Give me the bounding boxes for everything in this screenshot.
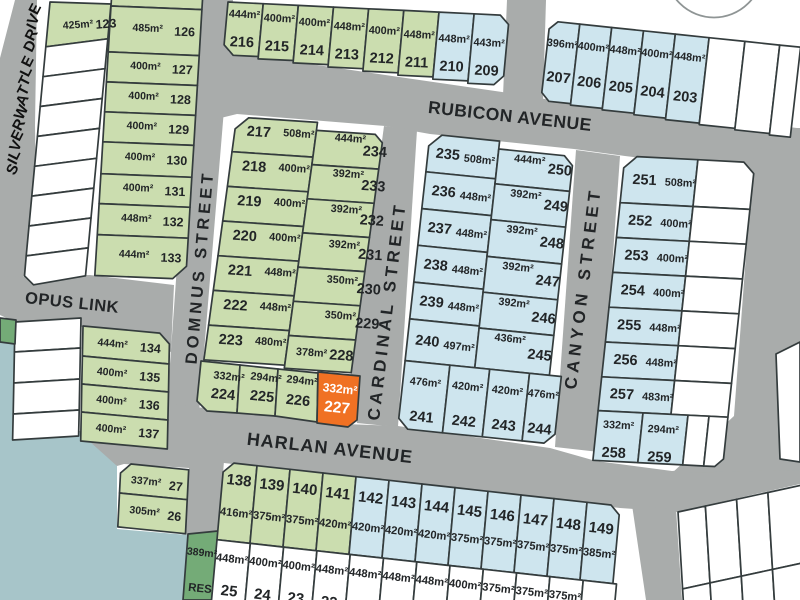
svg-text:400m²: 400m² (123, 182, 154, 195)
svg-text:256: 256 (613, 352, 638, 369)
svg-text:238: 238 (423, 257, 449, 275)
svg-text:332m²: 332m² (603, 419, 635, 433)
svg-text:350m²: 350m² (326, 274, 358, 288)
svg-text:132: 132 (162, 215, 183, 230)
svg-text:400m²: 400m² (274, 196, 306, 210)
svg-text:27: 27 (168, 479, 183, 494)
svg-text:400m²: 400m² (126, 120, 157, 133)
svg-text:207: 207 (546, 69, 572, 87)
svg-text:127: 127 (172, 62, 193, 77)
svg-text:134: 134 (139, 340, 161, 356)
svg-text:448m²: 448m² (403, 28, 435, 41)
svg-text:123: 123 (95, 16, 117, 31)
svg-text:215: 215 (264, 38, 289, 55)
svg-text:220: 220 (232, 228, 257, 246)
svg-text:400m²: 400m² (269, 231, 301, 245)
svg-text:240: 240 (414, 333, 440, 351)
svg-text:378m²: 378m² (296, 346, 328, 360)
svg-text:223: 223 (218, 332, 243, 350)
svg-text:480m²: 480m² (255, 335, 287, 349)
svg-text:400m²: 400m² (653, 287, 685, 301)
svg-text:259: 259 (647, 449, 672, 466)
svg-text:218: 218 (241, 158, 266, 176)
svg-text:128: 128 (170, 92, 191, 107)
svg-text:448m²: 448m² (333, 20, 365, 33)
svg-text:135: 135 (139, 369, 161, 385)
svg-text:227: 227 (323, 398, 351, 418)
svg-text:448m²: 448m² (645, 357, 677, 371)
svg-text:485m²: 485m² (132, 22, 163, 35)
svg-text:508m²: 508m² (665, 177, 697, 191)
svg-text:147: 147 (522, 510, 549, 530)
svg-text:241: 241 (409, 408, 435, 426)
svg-text:22: 22 (320, 593, 338, 600)
svg-text:294m²: 294m² (647, 423, 679, 437)
svg-text:250: 250 (547, 161, 573, 179)
svg-text:444m²: 444m² (229, 8, 261, 21)
svg-text:26: 26 (167, 509, 182, 524)
svg-text:206: 206 (576, 74, 602, 92)
svg-text:225: 225 (249, 388, 275, 406)
svg-text:350m²: 350m² (324, 309, 356, 323)
svg-text:217: 217 (246, 124, 271, 142)
svg-text:448m²: 448m² (438, 33, 470, 46)
svg-text:237: 237 (427, 220, 453, 238)
svg-text:23: 23 (286, 589, 304, 600)
svg-text:243: 243 (491, 417, 517, 435)
svg-text:139: 139 (259, 475, 286, 495)
svg-text:248: 248 (539, 234, 565, 252)
svg-text:258: 258 (601, 445, 626, 462)
svg-text:448m²: 448m² (264, 266, 296, 280)
svg-text:448m²: 448m² (259, 301, 291, 315)
svg-text:130: 130 (166, 153, 187, 168)
svg-text:400m²: 400m² (264, 12, 296, 25)
svg-text:392m²: 392m² (330, 203, 362, 217)
svg-text:400m²: 400m² (368, 24, 400, 37)
svg-text:400m²: 400m² (660, 217, 692, 231)
svg-text:131: 131 (164, 184, 185, 199)
svg-text:138: 138 (226, 471, 253, 491)
svg-text:483m²: 483m² (642, 391, 674, 405)
svg-text:232: 232 (359, 212, 384, 230)
svg-text:221: 221 (227, 262, 252, 280)
svg-text:236: 236 (431, 183, 457, 201)
svg-text:448m²: 448m² (649, 322, 681, 336)
svg-text:448m²: 448m² (121, 212, 152, 225)
svg-text:239: 239 (419, 293, 445, 311)
svg-text:444m²: 444m² (334, 132, 366, 146)
svg-text:228: 228 (329, 347, 354, 365)
svg-text:148: 148 (555, 515, 582, 535)
svg-text:253: 253 (624, 247, 649, 264)
svg-text:444m²: 444m² (119, 248, 150, 261)
svg-text:226: 226 (285, 392, 311, 410)
svg-text:204: 204 (640, 83, 666, 101)
svg-text:231: 231 (358, 247, 383, 265)
svg-text:137: 137 (138, 426, 160, 442)
svg-text:209: 209 (474, 63, 499, 80)
svg-text:257: 257 (609, 386, 634, 403)
svg-text:145: 145 (456, 501, 483, 521)
svg-text:205: 205 (608, 78, 634, 96)
svg-text:24: 24 (253, 586, 272, 600)
svg-text:224: 224 (210, 386, 236, 404)
svg-text:392m²: 392m² (332, 167, 364, 181)
svg-text:212: 212 (369, 50, 394, 67)
svg-text:244: 244 (527, 420, 553, 438)
svg-text:210: 210 (439, 59, 464, 76)
svg-text:392m²: 392m² (328, 238, 360, 252)
svg-text:400m²: 400m² (128, 90, 159, 103)
svg-text:149: 149 (588, 519, 615, 539)
svg-text:400m²: 400m² (278, 162, 310, 176)
svg-text:25: 25 (220, 582, 238, 600)
svg-text:203: 203 (672, 88, 698, 106)
svg-text:136: 136 (138, 397, 160, 413)
svg-text:246: 246 (531, 310, 557, 328)
svg-text:146: 146 (489, 506, 516, 526)
svg-text:211: 211 (405, 55, 429, 72)
svg-text:400m²: 400m² (130, 60, 161, 73)
svg-text:247: 247 (535, 273, 561, 291)
svg-text:251: 251 (632, 172, 657, 189)
svg-text:214: 214 (299, 42, 324, 59)
svg-text:129: 129 (168, 122, 189, 137)
svg-text:235: 235 (435, 146, 461, 164)
svg-text:425m²: 425m² (62, 18, 94, 32)
svg-text:230: 230 (356, 281, 381, 299)
svg-text:144: 144 (423, 497, 450, 517)
svg-text:234: 234 (362, 143, 387, 161)
svg-text:252: 252 (628, 213, 653, 230)
svg-text:400m²: 400m² (657, 252, 689, 266)
svg-text:245: 245 (527, 347, 553, 365)
svg-text:443m²: 443m² (473, 37, 505, 50)
svg-text:213: 213 (334, 46, 359, 63)
svg-text:255: 255 (617, 317, 642, 334)
svg-text:508m²: 508m² (283, 127, 315, 141)
svg-text:254: 254 (620, 282, 645, 299)
svg-text:140: 140 (291, 480, 318, 500)
svg-text:219: 219 (237, 193, 262, 211)
svg-text:133: 133 (160, 251, 181, 266)
svg-text:143: 143 (390, 493, 417, 513)
svg-text:RES: RES (188, 582, 213, 596)
svg-text:400m²: 400m² (125, 151, 156, 164)
svg-text:233: 233 (361, 178, 386, 196)
svg-text:141: 141 (324, 484, 351, 504)
svg-text:400m²: 400m² (299, 16, 331, 29)
svg-text:216: 216 (229, 34, 254, 51)
svg-text:142: 142 (357, 488, 384, 508)
svg-text:249: 249 (543, 197, 569, 215)
svg-text:242: 242 (451, 413, 477, 431)
svg-text:222: 222 (223, 297, 248, 315)
svg-text:126: 126 (174, 25, 195, 40)
